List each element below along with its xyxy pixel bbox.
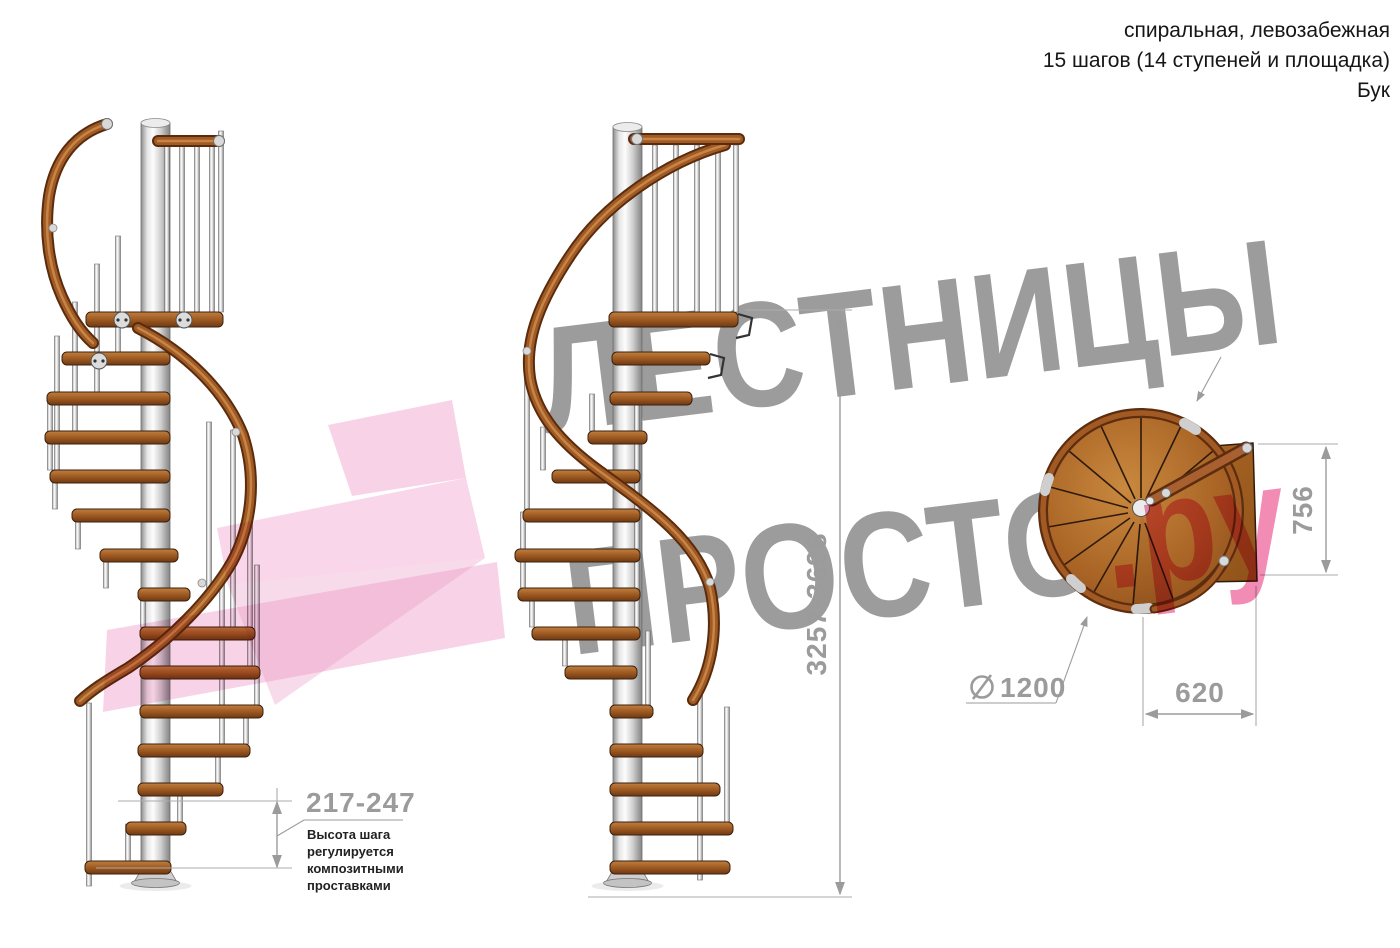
spec-steps: 15 шагов (14 ступеней и площадка) (1043, 46, 1390, 76)
baluster (716, 145, 721, 312)
tread (610, 822, 733, 835)
plan-center-ball (1146, 497, 1154, 505)
baluster (541, 427, 546, 470)
spec-type: спиральная, левозабежная (1043, 16, 1390, 46)
tread (140, 705, 263, 718)
tread (610, 744, 703, 757)
handrail-leader (1197, 357, 1221, 401)
mount-bolt (186, 318, 189, 321)
drawing-canvas: ЛЕСТНИЦЫПРОСТО.ру (0, 0, 1400, 948)
base-plate (132, 879, 180, 888)
tread (100, 549, 178, 562)
mount-bolt (178, 318, 181, 321)
baluster (116, 236, 121, 352)
mount-bolt (116, 318, 119, 321)
baluster (219, 131, 224, 312)
tread (47, 392, 170, 405)
rail-cap (102, 119, 113, 130)
tread (523, 509, 640, 522)
baluster (725, 707, 730, 822)
baluster (695, 145, 700, 312)
rail-connector (232, 428, 240, 436)
tread (138, 588, 190, 601)
mount-bolt (93, 359, 96, 362)
tread (588, 431, 647, 444)
dimension-diameter-value: 1200 (1000, 672, 1066, 703)
stair-side-view-center (515, 123, 752, 892)
tread (72, 509, 170, 522)
rail-cap (632, 134, 643, 145)
mount-bolt (124, 318, 127, 321)
baluster (210, 145, 215, 312)
dimension-total-height: 3257-3698 (801, 533, 832, 676)
column-cap (141, 119, 170, 128)
tread (610, 861, 730, 874)
tread (565, 666, 637, 679)
rail-connector (706, 578, 714, 586)
stair-side-view-left (45, 119, 263, 892)
baluster (95, 264, 100, 392)
plan-rail-cap (1219, 556, 1229, 566)
baluster (195, 145, 200, 312)
dimension-platform-width: 620 (1175, 677, 1225, 708)
plan-tube-collar (1162, 489, 1171, 498)
mount-bolt (101, 359, 104, 362)
tread (126, 822, 186, 835)
rail-connector (523, 347, 531, 355)
tread (515, 549, 640, 562)
tread (62, 352, 170, 365)
tread (138, 783, 223, 796)
base-plate (604, 879, 652, 888)
rail-connector (49, 224, 57, 232)
baluster (87, 703, 92, 886)
tread (86, 312, 223, 327)
staircase-drawing: 3257-3698 756 620 1200 (0, 0, 1400, 948)
tread (610, 783, 720, 796)
column-cap (613, 123, 642, 132)
tread (610, 392, 692, 405)
pink-arrow-facet (328, 400, 466, 496)
baluster (207, 422, 212, 588)
baluster (180, 145, 185, 312)
dimension-step-height: 217-247 (306, 787, 416, 818)
diameter-icon (972, 675, 993, 699)
tread (518, 588, 640, 601)
rail-cap (214, 136, 225, 147)
mount-plate (176, 312, 192, 328)
dimension-platform-depth: 756 (1287, 485, 1318, 535)
tread (610, 705, 653, 718)
rail-connector (198, 579, 206, 587)
plan-view (1043, 413, 1257, 609)
tread (138, 744, 250, 757)
spec-material: Бук (1043, 76, 1390, 106)
baluster (734, 145, 739, 312)
tread (45, 431, 170, 444)
tread (609, 312, 738, 327)
tread (50, 470, 170, 483)
tread (532, 627, 640, 640)
plan-tube-cap (1242, 443, 1252, 453)
baluster (590, 394, 595, 431)
baluster (165, 145, 170, 312)
note-step-height: Высота шага регулируется композитными пр… (307, 826, 404, 894)
baluster (646, 631, 651, 705)
spec-block: спиральная, левозабежная 15 шагов (14 ст… (1043, 16, 1390, 106)
tread (612, 352, 710, 365)
